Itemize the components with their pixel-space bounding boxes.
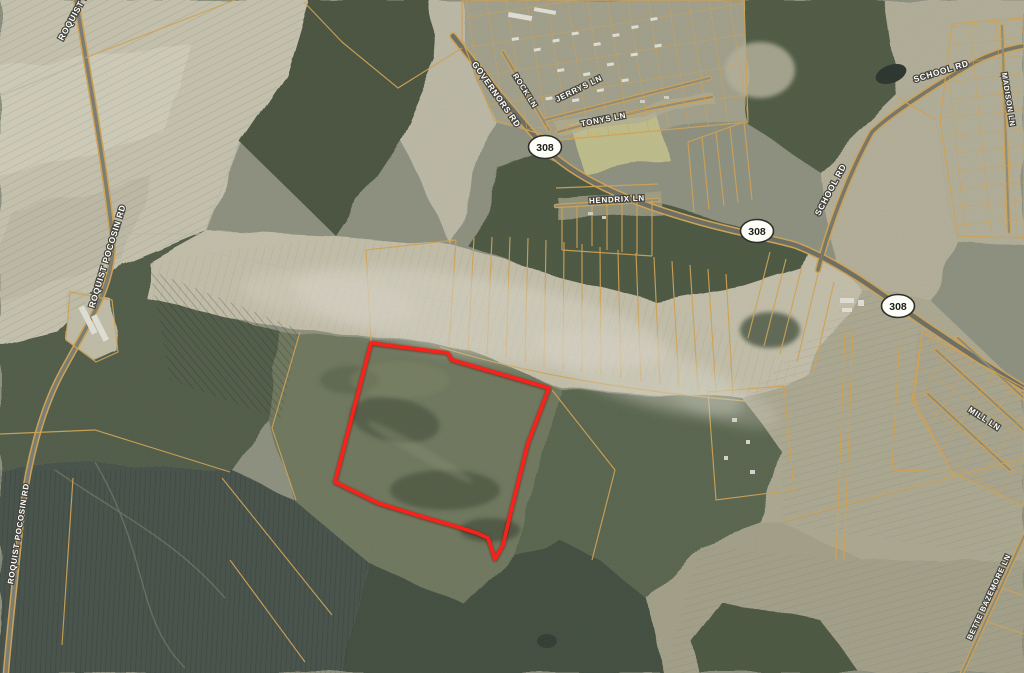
map-viewport[interactable]: ROQUIST POCOSIN RD ROQUIST POCOSIN RD RO… [0,0,1024,673]
shield-route-number: 308 [536,142,554,154]
highway-shield-308-west: 308 [529,136,562,159]
satellite-map-image: ROQUIST POCOSIN RD ROQUIST POCOSIN RD RO… [0,0,1024,673]
highway-shield-308-middle: 308 [741,220,774,243]
shield-route-number: 308 [889,301,907,313]
shield-route-number: 308 [748,226,766,238]
highway-shield-308-east: 308 [882,295,915,318]
grain-light [0,0,1024,673]
